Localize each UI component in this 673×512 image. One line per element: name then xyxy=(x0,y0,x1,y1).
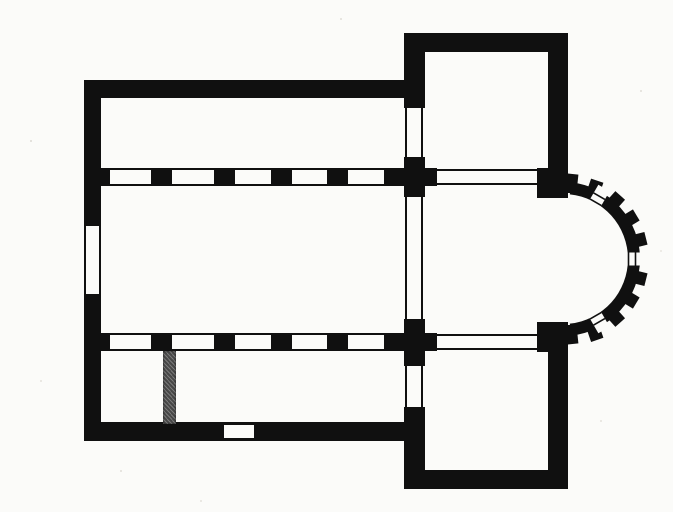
crossing-south-arch-line xyxy=(425,348,537,350)
room-southwest xyxy=(101,351,163,422)
opening-face-line xyxy=(421,197,423,319)
transept-north-wall xyxy=(404,33,568,52)
room-south-aisle xyxy=(176,351,404,422)
room-north-transept-arm xyxy=(425,52,548,168)
north-arcade-line-upper xyxy=(101,168,404,170)
west-portal-jamb-line xyxy=(84,226,86,294)
opening-face-line xyxy=(421,108,423,157)
south-arcade-pier xyxy=(327,333,348,351)
north-arcade-pier xyxy=(214,168,235,186)
north-arcade-stub xyxy=(101,168,110,186)
south-arcade-pier xyxy=(271,333,292,351)
room-north-aisle xyxy=(101,98,404,168)
north-arcade-pier xyxy=(271,168,292,186)
south-arcade-pier xyxy=(151,333,172,351)
opening-face-line xyxy=(405,108,407,157)
south-arcade-stub xyxy=(101,333,110,351)
crossing-north-arch-line xyxy=(425,169,537,171)
room-south-transept-arm xyxy=(425,352,548,470)
apse-buttress xyxy=(564,173,578,187)
room-nave xyxy=(101,186,404,333)
opening-face-line xyxy=(405,197,407,319)
south-wall xyxy=(84,422,425,441)
north-arcade-pier xyxy=(151,168,172,186)
south-arcade-line-upper xyxy=(101,333,404,335)
crossing-north-arch-line xyxy=(425,183,537,185)
crossing-south-arch-line xyxy=(425,334,537,336)
north-wall xyxy=(84,80,425,98)
transept-east-wall-north xyxy=(548,33,568,178)
apse-buttress xyxy=(564,330,578,344)
transept-south-wall xyxy=(404,470,568,489)
north-arcade-pier xyxy=(327,168,348,186)
partition-wall xyxy=(163,351,176,424)
paper-noise xyxy=(0,0,2,2)
opening-face-line xyxy=(405,366,407,407)
south-door-niche xyxy=(224,425,254,438)
room-apse-interior xyxy=(551,200,624,318)
transept-east-wall-south xyxy=(548,344,568,489)
apse-window-east xyxy=(622,253,645,266)
room-crossing xyxy=(425,186,548,333)
opening-face-line xyxy=(421,366,423,407)
floor-plan xyxy=(0,0,673,512)
south-arcade-pier xyxy=(214,333,235,351)
